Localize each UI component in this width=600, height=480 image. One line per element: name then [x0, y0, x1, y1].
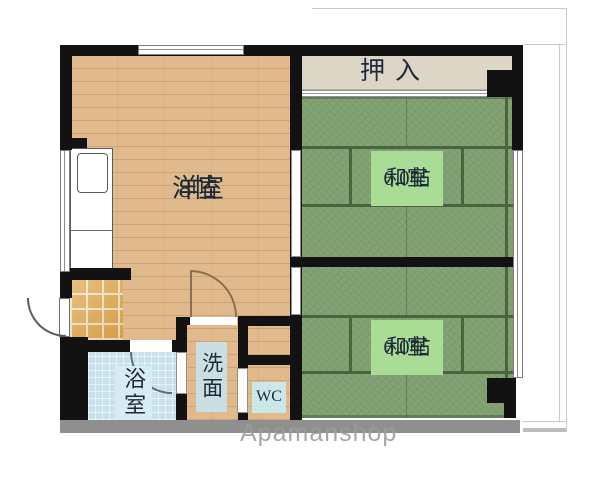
tatami-joint [349, 146, 352, 207]
washroom-name: 洗面 [199, 352, 223, 402]
wall-closet-block [487, 70, 514, 97]
wall-between-tatami-rooms [302, 257, 516, 267]
tatami-joint [302, 315, 514, 318]
fusuma-door-upper [291, 150, 301, 257]
kitchen-sink [77, 153, 108, 193]
bathroom-label: 浴室 [115, 366, 152, 420]
outer-outline-right [566, 8, 567, 432]
wall-right-upper [512, 45, 523, 150]
tatami-joint [406, 97, 407, 146]
wall-washroom-door-jamb [176, 317, 190, 325]
wall-left-upper [60, 45, 72, 150]
fusuma-door-lower [291, 267, 301, 315]
bathroom-name: 浴室 [121, 367, 146, 419]
wall-bath-top-left [88, 340, 130, 352]
closet-sliding-door [302, 90, 487, 97]
balcony-inner-line [559, 44, 560, 422]
wall-corner-block-small [504, 403, 516, 418]
tatami-joint [461, 315, 464, 374]
watermark: Apamanshop [240, 419, 397, 448]
tatami-joint [406, 374, 407, 418]
window-top [138, 45, 244, 55]
washroom-label: 洗面 [196, 342, 227, 412]
wall-left-lower [60, 337, 88, 420]
japanese-room-upper-size: 6.0帖 [383, 166, 430, 190]
western-room-size: 8帖 [178, 174, 217, 204]
outer-outline-top [312, 8, 567, 9]
japanese-room-lower-label: 和室 6.0帖 [371, 320, 443, 375]
wall-corner-block [487, 378, 516, 403]
tatami-joint [349, 315, 352, 374]
western-room-label: 洋室 8帖 [150, 156, 246, 222]
toilet-label: WC [252, 382, 286, 413]
tatami-joint [406, 207, 407, 257]
wall-bath-washroom-lower [176, 394, 187, 420]
wall-counter-corner [70, 138, 87, 148]
bath-sliding-door [176, 352, 187, 394]
bathroom-door-opening [130, 340, 172, 352]
floorplan: 洋室 8帖 押入 和室 6.0帖 和室 6.0帖 浴室 洗面 WC Apaman… [0, 0, 600, 480]
tatami-joint [461, 146, 464, 207]
wc-door [237, 368, 248, 413]
tatami-joint [302, 146, 514, 149]
tatami-edge-bottom [302, 415, 514, 418]
balcony-bottom-line [523, 421, 566, 422]
closet-name: 押入 [360, 58, 430, 87]
toilet-name: WC [256, 388, 282, 406]
balcony-top-line [523, 44, 567, 45]
washroom-door-opening [190, 317, 237, 325]
japanese-room-upper-label: 和室 6.0帖 [371, 151, 443, 206]
window-left [60, 150, 70, 272]
wall-above-genkan [66, 268, 131, 280]
closet-label: 押入 [330, 56, 460, 88]
balcony-shadow [523, 428, 566, 432]
tatami-edge [302, 97, 514, 99]
window-right-balcony [513, 150, 523, 378]
entrance-door-arc [27, 298, 66, 337]
genkan-tile-floor [70, 280, 123, 340]
tatami-joint [406, 267, 407, 315]
japanese-room-lower-size: 6.0帖 [383, 335, 430, 359]
